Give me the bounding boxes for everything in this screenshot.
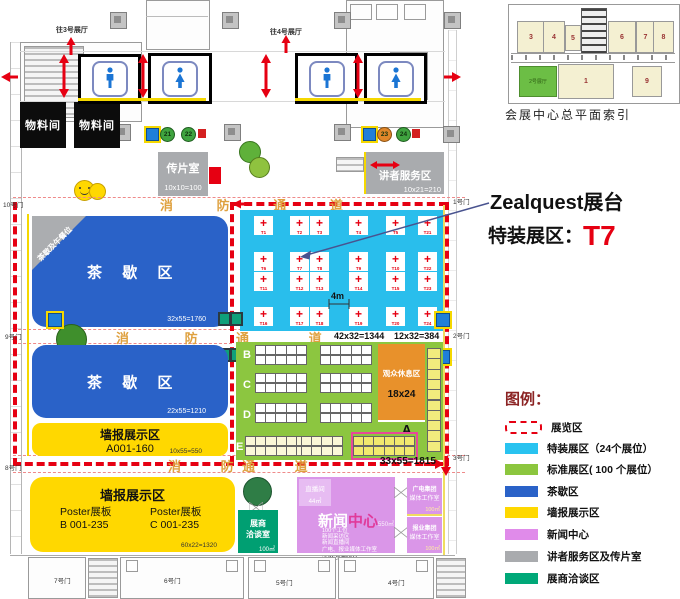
exhibition-floor-plan: 往3号展厅 往4号展厅 物料间 物料间 21 22 23 24 传片室 10x1… (0, 0, 680, 599)
index-hall-label: 7 (644, 34, 648, 41)
pillar (444, 12, 461, 29)
tree (249, 157, 270, 178)
row-label-c: C (243, 379, 251, 391)
index-hall-label: 9 (645, 78, 649, 85)
legend-swatch (505, 573, 538, 584)
index-hall-3: 3 (517, 21, 545, 53)
legend-item: 墙报展示区 (505, 505, 600, 519)
female-icon (378, 61, 414, 97)
exhibition-area-dash-right (445, 202, 449, 466)
legend-item: 茶歇区 (505, 484, 579, 498)
poster-bc-dim: 60x22=1320 (181, 542, 217, 549)
to-hall4-note: 往4号展厅 (270, 27, 302, 37)
legend-swatch (505, 464, 538, 475)
gate-8: 8号门 (5, 462, 22, 472)
pillar (334, 124, 351, 141)
index-road (511, 53, 675, 54)
index-hall-label: 3 (529, 34, 533, 41)
gate-3: 3号门 (453, 452, 470, 462)
poster-bc-title: 墙报展示区 (30, 485, 235, 504)
annotation-booth-id: T7 (583, 220, 616, 251)
facade-stairs (88, 558, 118, 598)
index-map-caption: 会展中心总平面索引 (505, 106, 631, 123)
room-topright-3 (404, 4, 426, 20)
facade-inner (254, 560, 266, 572)
marker-22: 22 (181, 127, 196, 142)
poster-c-range: C 001-235 (150, 519, 199, 531)
negotiation-line1: 展商 (238, 518, 278, 529)
yellow-wall-strip (295, 98, 421, 101)
media-office-1-line2: 媒体工作室 (407, 493, 442, 502)
restroom-male-left (78, 54, 141, 104)
exhibition-area-dash-left-inner (230, 202, 234, 464)
legend-item: 标准展区( 100 个展位） (505, 462, 658, 476)
index-map: 3 4 5 6 7 8 2号展厅 1 9 (508, 4, 680, 104)
index-road (511, 62, 675, 63)
rest-area-dim: 18x24 (378, 389, 425, 400)
legend-item: 新闻中心 (505, 527, 589, 541)
audience-rest-area: 观众休息区 18x24 (378, 344, 425, 422)
material-room-label: 物料间 (25, 117, 61, 133)
marker-label: 22 (185, 131, 192, 138)
legend-swatch (505, 486, 538, 497)
male-icon (309, 61, 345, 97)
building-topcenter (146, 0, 210, 50)
door-square-blue (146, 128, 159, 141)
negotiation-area: 100㎡ (238, 544, 278, 553)
hatch-block (336, 157, 364, 172)
negotiation-line2: 洽谈室 (238, 529, 278, 540)
material-room-label: 物料间 (79, 117, 115, 133)
gate-6: 6号门 (164, 575, 181, 585)
legend-label: 展览区 (551, 420, 583, 435)
index-hall-2-green: 2号展厅 (519, 66, 557, 97)
legend-item: 特装展区（24个展位） (505, 441, 653, 455)
special-zone-dim-main: 42x32=1344 (334, 331, 384, 341)
facade-inner (318, 560, 330, 572)
restroom-female-left (148, 53, 212, 104)
corridor-line-top (20, 51, 445, 52)
index-hall-label: 4 (552, 34, 556, 41)
news-center: 直播间 44㎡ 新闻中心550㎡ 100个工位 新闻采访区 新闻直播间 广电、报… (297, 477, 395, 553)
legend-title: 图例： (505, 388, 550, 409)
facade-line (10, 555, 455, 556)
index-hall-label: 5 (571, 35, 575, 42)
special-zone (240, 210, 443, 331)
rest-area-label: 观众休息区 (378, 368, 425, 379)
row-label-e: E (236, 441, 243, 453)
double-arrow-icon (261, 54, 271, 98)
tea-area-2-dim: 22x55=1210 (167, 408, 206, 415)
live-studio-area: 44㎡ (299, 496, 331, 505)
gate-10: 10号门 (3, 199, 23, 209)
live-studio: 直播间 44㎡ (299, 479, 331, 506)
right-wall (448, 30, 457, 554)
index-hall-6: 6 (608, 21, 636, 53)
poster-area-bc: 墙报展示区 Poster展板 B 001-235 Poster展板 C 001-… (30, 477, 235, 552)
media-room-label: 传片室 (158, 160, 208, 176)
index-hall-4: 4 (543, 21, 565, 53)
marker-23: 23 (377, 127, 392, 142)
legend-label: 茶歇区 (547, 484, 579, 499)
media-room-dim: 10x10=100 (158, 183, 208, 192)
tea-area-1: 茶歇及午餐位 茶 歇 区 32x55=1760 (32, 216, 228, 327)
legend-label: 新闻中心 (547, 527, 589, 542)
legend-item: 展览区 (505, 420, 583, 434)
legend-label: 讲者服务区及传片室 (547, 549, 642, 564)
special-zone-dim-side: 12x32=384 (394, 331, 439, 341)
index-center-building (581, 8, 607, 54)
restroom-female-right (364, 53, 427, 104)
tea-area-2-label: 茶 歇 区 (87, 371, 180, 392)
door-square-blue (48, 313, 62, 327)
media-room: 传片室 10x10=100 (158, 152, 208, 196)
media-office-2-line1: 报业集团 (407, 523, 442, 532)
standard-zone-dim: 33x55=1815 (380, 456, 436, 467)
facade-inner (126, 560, 138, 572)
index-hall-5: 5 (565, 25, 581, 51)
door-swing-icon (394, 527, 408, 538)
gate-4: 4号门 (388, 577, 405, 587)
room-topright-1 (350, 4, 372, 20)
media-office-1-line1: 广电集团 (407, 484, 442, 493)
negotiation-room: 展商 洽谈室 100㎡ (238, 510, 278, 553)
media-office-2-area: 100㎡ (407, 544, 442, 552)
restroom-male-right (295, 53, 358, 104)
gate-5: 5号门 (276, 577, 293, 587)
annotation-zone-label: 特装展区： (488, 226, 583, 247)
legend-label: 特装展区（24个展位） (547, 441, 653, 456)
legend-label: 墙报展示区 (547, 505, 600, 520)
aisle-dim-label: 4m (331, 291, 344, 301)
door-square-blue (436, 313, 450, 327)
marker-label: 24 (400, 131, 407, 138)
facade-stairs (436, 558, 466, 598)
index-hall-1: 1 (558, 64, 614, 99)
yellow-wall (443, 205, 445, 555)
marker-24: 24 (396, 127, 411, 142)
legend: 图例： 展览区特装展区（24个展位）标准展区( 100 个展位）茶歇区墙报展示区… (500, 388, 680, 596)
annotation-booth-owner: Zealquest展台 (490, 186, 623, 215)
news-details: 100个工位 新闻采访区 新闻直播间 广电、报业媒体工作室 (322, 528, 377, 553)
poster-b-label: Poster展板 (60, 504, 111, 519)
legend-label: 展商洽谈区 (547, 571, 600, 586)
female-icon (162, 61, 198, 97)
male-icon (92, 61, 128, 97)
legend-swatch (505, 443, 538, 454)
media-office-2: 报业集团 媒体工作室 100㎡ (407, 517, 442, 553)
gate-2: 2号门 (453, 330, 470, 340)
speaker-service-label: 讲者服务区 (366, 168, 444, 183)
pillar (334, 12, 351, 29)
pillar (222, 12, 239, 29)
legend-item: 展商洽谈区 (505, 571, 600, 585)
door-swing-icon (394, 487, 408, 498)
index-hall-label: 8 (662, 34, 666, 41)
tea-area-1-label: 茶 歇 区 (87, 261, 180, 282)
poster-area-a-title: 墙报展示区 (32, 426, 228, 443)
gate-9: 9号门 (5, 331, 22, 341)
index-hall-9: 9 (632, 66, 662, 97)
facade-inner (344, 560, 356, 572)
legend-swatch (505, 551, 538, 562)
legend-swatch (505, 507, 538, 518)
row-label-d: D (243, 409, 251, 421)
row-label-b: B (243, 349, 251, 361)
legend-label: 标准展区( 100 个展位） (547, 462, 658, 477)
gate-1: 1号门 (453, 196, 470, 206)
media-office-1-area: 100㎡ (407, 505, 442, 513)
yellow-wall-strip (78, 98, 206, 101)
red-kiosk (209, 167, 221, 184)
marker-red-square (412, 129, 420, 138)
index-hall-label: 2号展厅 (529, 78, 547, 85)
media-office-1: 广电集团 媒体工作室 100㎡ (407, 478, 442, 516)
marker-label: 21 (164, 131, 171, 138)
poster-b-range: B 001-235 (60, 519, 108, 531)
pillar (443, 126, 460, 143)
index-hall-label: 1 (584, 78, 588, 85)
door-square-teal-pair (218, 312, 243, 326)
legend-item: 讲者服务区及传片室 (505, 549, 642, 563)
yellow-wall (27, 214, 29, 456)
news-area: 550㎡ (378, 522, 394, 528)
to-hall3-note: 往3号展厅 (56, 25, 88, 35)
poster-c-label: Poster展板 (150, 504, 201, 519)
poster-area-a-dim: 10x55=550 (170, 448, 202, 455)
material-room-1: 物料间 (20, 102, 66, 148)
live-studio-label: 直播间 (299, 483, 331, 493)
legend-swatch (505, 421, 542, 434)
index-hall-label: 6 (620, 34, 624, 41)
tea-area-2: 茶 歇 区 22x55=1210 (32, 345, 228, 418)
building-topcenter-line (146, 16, 208, 17)
door-square-blue (363, 128, 376, 141)
gate-7: 7号门 (54, 575, 71, 585)
index-hall-8: 8 (653, 21, 674, 53)
pillar (224, 124, 241, 141)
marker-red-square (198, 129, 206, 138)
annotation-zone: 特装展区：T7 (488, 220, 616, 252)
facade-inner (416, 560, 428, 572)
room-topright-2 (376, 4, 398, 20)
poster-area-a: 墙报展示区 A001-160 10x55=550 (32, 423, 228, 456)
marker-21: 21 (160, 127, 175, 142)
speaker-service-area: 讲者服务区 10x21=210 (364, 152, 444, 194)
legend-swatch (505, 529, 538, 540)
tea-area-1-dim: 32x55=1760 (167, 316, 206, 323)
material-room-2: 物料间 (74, 102, 120, 148)
pillar (110, 12, 127, 29)
index-road-ticks (511, 55, 675, 60)
speaker-service-dim: 10x21=210 (366, 185, 444, 194)
news-detail: 广电、报业媒体工作室 (322, 547, 377, 553)
media-office-2-line2: 媒体工作室 (407, 532, 442, 541)
marker-label: 23 (381, 131, 388, 138)
facade-inner (226, 560, 238, 572)
